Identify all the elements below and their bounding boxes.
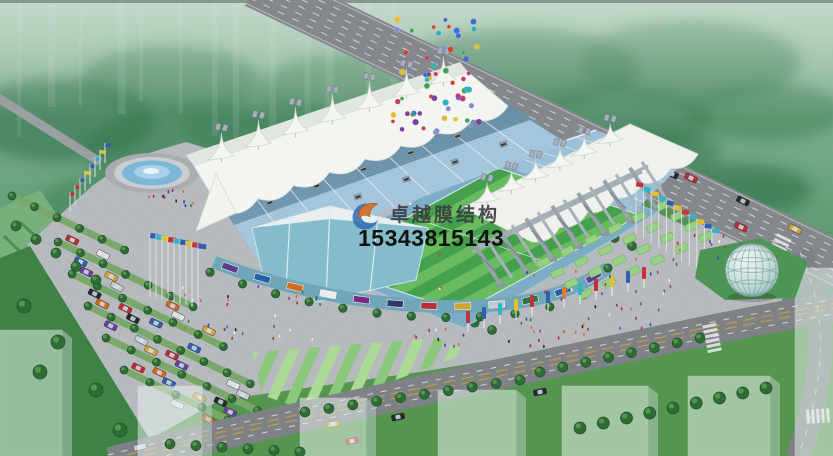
balloon [442, 99, 448, 105]
ghost-building-side [516, 390, 526, 456]
person-dot [583, 323, 585, 326]
tree-icon [246, 380, 254, 388]
person-dot [609, 313, 611, 316]
tree-highlight [738, 388, 743, 393]
balloon [471, 19, 477, 25]
tree-icon [219, 343, 227, 351]
ghost-building [300, 398, 376, 456]
balloon [467, 71, 471, 75]
balloon [448, 47, 454, 53]
flag [712, 228, 719, 233]
balloon [431, 95, 437, 101]
tree-icon [77, 249, 85, 257]
tree-icon [54, 238, 62, 246]
tree-icon [130, 324, 138, 332]
tree-highlight [306, 298, 310, 302]
tree-highlight [115, 424, 121, 430]
person-dot [453, 345, 455, 348]
tree-icon [144, 306, 152, 314]
person-dot [558, 336, 560, 339]
balloon [410, 28, 414, 32]
tree-icon [443, 386, 453, 396]
balloon [442, 115, 448, 121]
tree-icon [91, 275, 101, 285]
tree-icon [695, 333, 705, 343]
tree-icon [120, 366, 128, 374]
tree-highlight [628, 349, 633, 354]
tree-highlight [582, 358, 587, 363]
tree-icon [348, 400, 358, 410]
tree-icon [535, 367, 545, 377]
person-dot [526, 318, 528, 321]
tree-icon [51, 335, 65, 349]
balloon [394, 16, 400, 22]
tree-icon [71, 262, 81, 272]
tree-highlight [85, 303, 89, 307]
person-dot [182, 286, 184, 289]
balloon [446, 106, 451, 111]
tree-icon [442, 313, 450, 321]
balloon [421, 126, 425, 130]
flag [704, 223, 711, 228]
balloon [466, 87, 472, 93]
tree-highlight [195, 331, 199, 335]
player-dot [438, 253, 440, 255]
balloon [474, 44, 479, 49]
tree-icon [228, 395, 236, 403]
balloon [427, 72, 432, 77]
balloon [461, 77, 466, 82]
player-dot [440, 287, 442, 289]
banner [626, 271, 630, 283]
tree-icon [558, 362, 568, 372]
tree-highlight [547, 304, 551, 308]
person-dot [571, 288, 573, 291]
tree-highlight [155, 336, 159, 340]
tree-highlight [536, 368, 541, 373]
tree-highlight [145, 307, 149, 311]
person-dot [530, 318, 532, 321]
ghost-building-face [795, 268, 833, 456]
tree-icon [152, 358, 160, 366]
tree-highlight [445, 387, 450, 392]
balloon [471, 27, 476, 32]
balloon [442, 46, 447, 51]
tree-icon [178, 370, 186, 378]
tree-highlight [325, 404, 330, 409]
tree-icon [127, 346, 135, 354]
tree-highlight [696, 334, 701, 339]
tree-icon [238, 280, 246, 288]
ad-billboard [488, 300, 505, 308]
balloon [469, 103, 474, 108]
person-dot [724, 246, 726, 249]
balloon [391, 120, 395, 124]
flag [689, 214, 696, 219]
balloon [455, 93, 460, 98]
banner [466, 311, 470, 323]
tree-highlight [477, 313, 481, 317]
tree-icon [419, 389, 429, 399]
person-dot [200, 299, 202, 302]
tree-highlight [192, 442, 197, 447]
person-dot [694, 234, 696, 237]
person-dot [709, 240, 711, 243]
balloon [443, 18, 447, 22]
fountain-plaza [105, 153, 199, 193]
ghost-building [795, 268, 833, 456]
tree-icon [597, 417, 609, 429]
balloon [431, 63, 436, 68]
ad-billboard [387, 300, 403, 308]
tree-icon [672, 338, 682, 348]
person-dot [148, 195, 150, 198]
tree-icon [84, 302, 92, 310]
person-dot [670, 285, 672, 288]
tree-icon [488, 326, 497, 335]
tree-highlight [99, 236, 103, 240]
tree-icon [17, 299, 31, 313]
balloon [453, 117, 458, 122]
person-dot [224, 328, 226, 331]
tree-highlight [128, 347, 132, 351]
tree-icon [113, 423, 127, 437]
ghost-building [562, 386, 658, 456]
tree-highlight [272, 290, 276, 294]
person-dot [609, 275, 611, 278]
tree-icon [621, 412, 633, 424]
flag [644, 187, 651, 192]
person-dot [289, 329, 291, 332]
tree-icon [373, 309, 381, 317]
ghost-building-side [62, 330, 72, 456]
banner [594, 279, 598, 291]
tree-highlight [247, 381, 251, 385]
tree-icon [107, 313, 115, 321]
tree-icon [102, 334, 110, 342]
person-dot [437, 338, 439, 341]
flag [659, 196, 666, 201]
tree-icon [407, 312, 415, 320]
ad-billboard [455, 303, 471, 310]
balloon [390, 112, 396, 118]
person-dot [302, 290, 304, 293]
tree-highlight [35, 366, 41, 372]
person-dot [583, 333, 585, 336]
tree-highlight [145, 282, 149, 286]
person-dot [463, 334, 465, 337]
tree-icon [200, 358, 208, 366]
tree-icon [89, 383, 103, 397]
person-dot [650, 323, 652, 326]
tree-icon [305, 298, 313, 306]
tree-highlight [397, 394, 402, 399]
tree-highlight [204, 383, 208, 387]
tree-highlight [19, 300, 25, 306]
person-dot [172, 189, 174, 192]
person-dot [543, 345, 545, 348]
tree-highlight [224, 369, 228, 373]
tree-highlight [421, 390, 426, 395]
person-dot [168, 190, 170, 193]
tree-icon [604, 264, 612, 272]
balloon [412, 119, 418, 125]
tree-highlight [489, 326, 493, 330]
tree-icon [169, 318, 177, 326]
person-dot [658, 308, 660, 311]
balloon [417, 111, 422, 116]
tree-icon [690, 397, 702, 409]
tree-highlight [622, 413, 627, 418]
person-dot [164, 196, 166, 199]
tree-highlight [207, 269, 211, 273]
tree-icon [339, 304, 347, 312]
person-dot [619, 327, 621, 330]
tree-highlight [576, 423, 581, 428]
tree-highlight [77, 225, 81, 229]
person-dot [435, 328, 437, 331]
flag [198, 243, 207, 249]
tree-highlight [244, 445, 249, 450]
banner [546, 291, 550, 303]
banner [498, 303, 502, 315]
tree-icon [667, 402, 679, 414]
tree-highlight [52, 249, 57, 254]
person-dot [274, 314, 276, 317]
flag [666, 200, 673, 205]
flag [105, 143, 111, 147]
balloon [463, 56, 469, 62]
tree-icon [53, 214, 61, 222]
balloon [405, 111, 410, 116]
tree-highlight [147, 379, 151, 383]
person-dot [561, 298, 563, 301]
tree-icon [243, 444, 253, 454]
ghost-building [438, 390, 526, 456]
person-dot [183, 200, 185, 203]
tree-icon [581, 357, 591, 367]
banner [642, 267, 646, 279]
tree-highlight [72, 263, 77, 268]
tree-highlight [9, 193, 13, 197]
tree-icon [515, 375, 525, 385]
flag [651, 191, 658, 196]
tree-highlight [103, 335, 107, 339]
tree-highlight [218, 443, 223, 448]
tree-highlight [166, 440, 171, 445]
ghost-building-face [0, 330, 62, 456]
tree-highlight [443, 314, 447, 318]
person-dot [605, 283, 607, 286]
tree-highlight [301, 408, 306, 413]
person-dot [257, 285, 259, 288]
tree-highlight [516, 376, 521, 381]
banner [578, 283, 582, 295]
banner [482, 307, 486, 319]
tree-highlight [669, 403, 674, 408]
tree-icon [189, 303, 197, 311]
balloon [394, 27, 400, 33]
person-dot [415, 336, 417, 339]
ghost-building [0, 330, 72, 456]
tree-icon [269, 445, 279, 455]
person-dot [295, 295, 297, 298]
balloon [434, 72, 438, 76]
tree-highlight [229, 395, 233, 399]
tree-highlight [340, 305, 344, 309]
tree-icon [626, 348, 636, 358]
person-dot [192, 202, 194, 205]
person-dot [273, 325, 275, 328]
balloon [399, 69, 405, 75]
person-dot [587, 345, 589, 348]
tree-highlight [123, 271, 127, 275]
person-dot [153, 195, 155, 198]
tree-highlight [408, 313, 412, 317]
tree-highlight [153, 359, 157, 363]
tree-icon [760, 382, 772, 394]
balloon [432, 25, 436, 29]
tree-highlight [92, 276, 97, 281]
ghost-building-side [202, 386, 212, 456]
tree-highlight [645, 408, 650, 413]
person-dot [288, 297, 290, 300]
tree-highlight [605, 353, 610, 358]
tree-highlight [54, 214, 58, 218]
tree-highlight [78, 250, 82, 254]
tree-icon [604, 352, 614, 362]
tree-icon [300, 407, 310, 417]
tree-highlight [673, 339, 678, 344]
tree-highlight [270, 446, 275, 451]
person-dot [544, 290, 546, 293]
tree-highlight [254, 407, 258, 411]
balloon [400, 127, 405, 132]
tree-icon [146, 378, 154, 386]
tree-icon [98, 235, 106, 243]
tree-icon [122, 270, 130, 278]
person-dot [718, 240, 720, 243]
person-dot [533, 274, 535, 277]
balloon [476, 119, 482, 125]
tree-highlight [373, 397, 378, 402]
person-dot [711, 243, 713, 246]
tree-icon [121, 246, 129, 254]
tree-icon [491, 379, 501, 389]
balloon [410, 113, 414, 117]
tree-highlight [55, 239, 59, 243]
tree-icon [33, 365, 47, 379]
tree-highlight [651, 344, 656, 349]
tree-highlight [119, 295, 123, 299]
tree-icon [574, 422, 586, 434]
tree-highlight [692, 398, 697, 403]
tree-icon [714, 392, 726, 404]
tree-icon [324, 403, 334, 413]
tree-icon [396, 393, 406, 403]
tree-icon [546, 303, 554, 311]
balloon [400, 97, 404, 101]
flag [682, 210, 689, 215]
person-dot [575, 331, 577, 334]
tree-icon [649, 343, 659, 353]
tree-icon [118, 294, 126, 302]
tree-highlight [468, 383, 473, 388]
person-dot [444, 343, 446, 346]
person-dot [458, 343, 460, 346]
person-dot [563, 330, 565, 333]
top-edge-strip [0, 0, 833, 3]
banner [514, 299, 518, 311]
person-dot [521, 322, 523, 325]
tree-highlight [629, 242, 633, 246]
banner [530, 295, 534, 307]
balloon [425, 56, 429, 60]
balloon [395, 99, 400, 104]
ghost-building-face [688, 376, 770, 456]
person-dot [242, 332, 244, 335]
tree-highlight [599, 418, 604, 423]
tree-icon [154, 335, 162, 343]
stadium-rendering-image: 卓越膜结构 15343815143 [0, 0, 833, 456]
banner [562, 287, 566, 299]
tree-highlight [559, 363, 564, 368]
tree-highlight [32, 204, 36, 208]
balloon [443, 68, 449, 74]
tree-highlight [170, 319, 174, 323]
tree-icon [31, 235, 41, 245]
balloon [462, 51, 466, 55]
tree-icon [372, 396, 382, 406]
tree-highlight [179, 371, 183, 375]
tree-icon [206, 268, 214, 276]
tree-icon [194, 331, 202, 339]
balloon [454, 27, 460, 33]
person-dot [227, 295, 229, 298]
phone-number-text: 15343815143 [358, 225, 504, 251]
ghost-building-face [438, 390, 516, 456]
tree-icon [191, 441, 201, 451]
person-dot [575, 270, 577, 273]
tree-icon [11, 221, 21, 231]
person-dot [190, 204, 192, 207]
tree-highlight [12, 222, 17, 227]
tree-icon [737, 387, 749, 399]
balloon [425, 77, 430, 82]
tree-icon [31, 203, 39, 211]
tree-icon [165, 439, 175, 449]
ghost-building-side [366, 398, 376, 456]
tree-icon [144, 281, 152, 289]
tree-icon [177, 346, 185, 354]
tree-highlight [201, 358, 205, 362]
tree-icon [99, 260, 107, 268]
tree-icon [271, 290, 279, 298]
person-dot [235, 328, 237, 331]
tree-highlight [91, 384, 97, 390]
tree-highlight [121, 367, 125, 371]
flag [697, 219, 704, 224]
tree-highlight [108, 314, 112, 318]
person-dot [530, 344, 532, 347]
flag [636, 182, 643, 187]
balloon [403, 50, 408, 55]
person-dot [588, 317, 590, 320]
tree-icon [8, 192, 16, 200]
tree-highlight [53, 336, 59, 342]
tree-highlight [374, 310, 378, 314]
balloon [450, 81, 454, 85]
